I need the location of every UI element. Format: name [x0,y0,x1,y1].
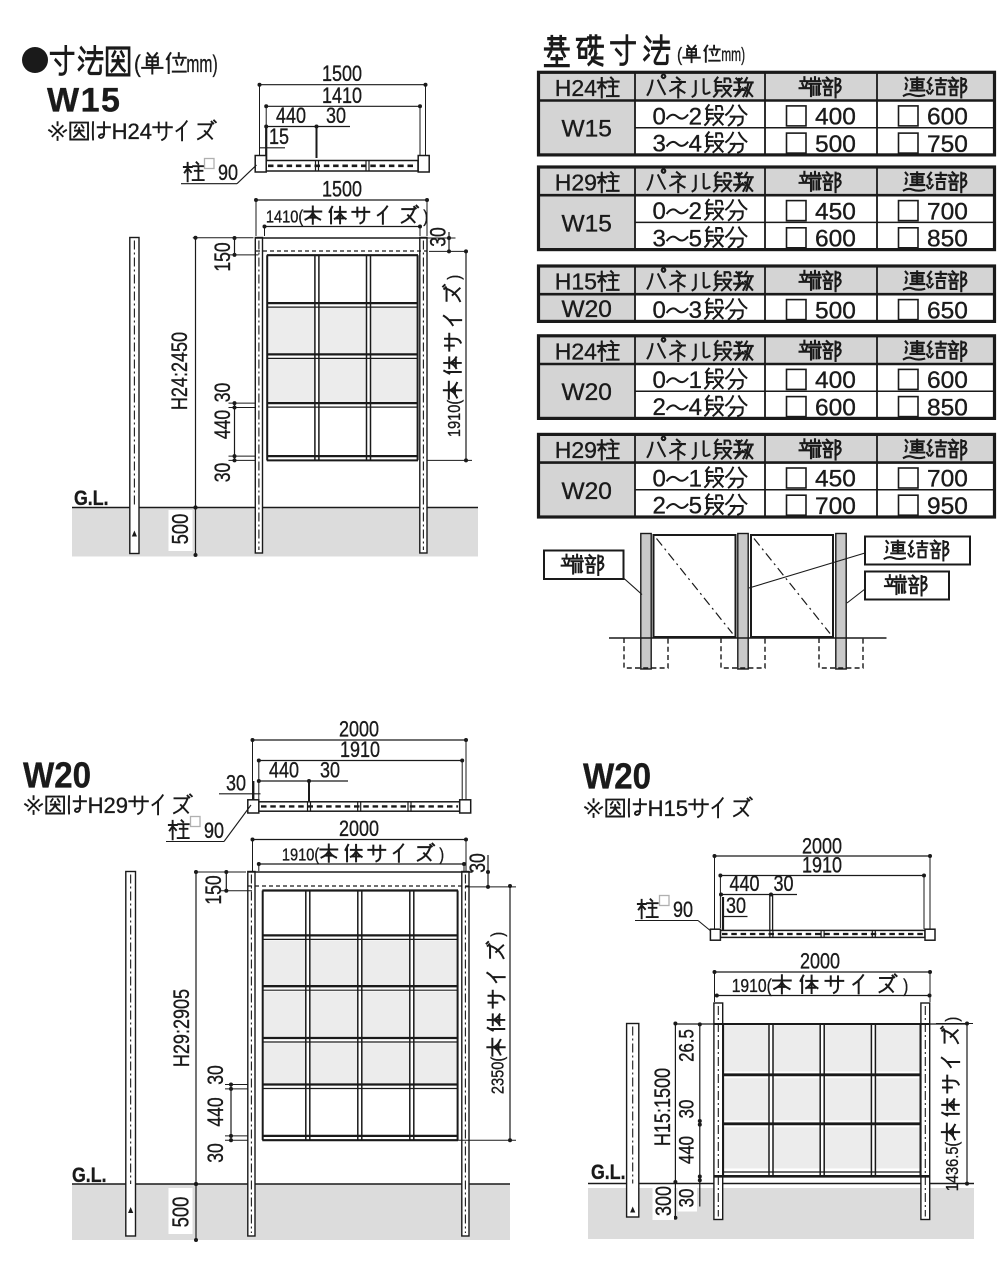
svg-text:2: 2 [689,103,702,130]
svg-text:500: 500 [167,514,193,545]
svg-text:30: 30 [465,853,490,873]
svg-text:30: 30 [226,770,246,795]
svg-text:30: 30 [726,893,746,918]
svg-text:0: 0 [652,367,665,394]
svg-text:600: 600 [927,104,968,131]
svg-text:30: 30 [676,1189,699,1208]
svg-text:H24: H24 [555,75,597,101]
svg-text:600: 600 [927,367,968,394]
svg-text:2000: 2000 [800,949,840,974]
svg-text:150: 150 [201,875,226,904]
svg-text:30: 30 [426,227,451,247]
svg-text:400: 400 [815,104,856,131]
svg-text:440: 440 [203,1097,228,1126]
svg-text:W20: W20 [562,379,612,406]
svg-text:90: 90 [673,897,693,922]
svg-text:440: 440 [269,758,299,783]
svg-text:H24: H24 [555,339,597,365]
svg-text:30: 30 [210,383,235,403]
svg-text:2000: 2000 [339,816,379,841]
svg-text:400: 400 [815,367,856,394]
svg-text:1910: 1910 [340,737,380,762]
svg-text:700: 700 [927,466,968,493]
svg-text:H15: H15 [555,269,597,295]
svg-text:3: 3 [652,131,665,158]
svg-text:700: 700 [927,198,968,225]
svg-text:30: 30 [320,758,340,783]
svg-text:0: 0 [652,297,665,324]
svg-text:W15: W15 [47,82,121,120]
svg-text:H29: H29 [555,170,597,196]
svg-text:): ) [444,275,464,280]
svg-text:): ) [439,845,444,865]
svg-text:5: 5 [689,225,702,252]
svg-text:700: 700 [815,493,856,520]
svg-text:W20: W20 [562,478,612,505]
svg-text:650: 650 [927,297,968,324]
svg-text:G.L.: G.L. [591,1160,626,1184]
svg-text:26.5: 26.5 [676,1029,699,1062]
svg-text:G.L.: G.L. [74,486,109,510]
svg-text:30: 30 [210,463,235,483]
svg-text:1410(: 1410( [266,207,304,227]
svg-text:W20: W20 [583,756,651,797]
svg-text:2350(: 2350( [487,1057,507,1095]
svg-text:H29: H29 [88,793,128,818]
svg-text:500: 500 [815,297,856,324]
svg-text:1: 1 [689,466,702,493]
svg-text:(: ( [134,51,141,78]
svg-text:2: 2 [652,394,665,421]
svg-text:500: 500 [815,131,856,158]
svg-text:3: 3 [689,297,702,324]
svg-text:15: 15 [269,124,289,149]
svg-text:450: 450 [815,466,856,493]
svg-text:500: 500 [167,1197,193,1228]
svg-text:2: 2 [652,493,665,520]
svg-text:1: 1 [689,367,702,394]
svg-text:mm): mm) [721,44,745,66]
svg-text:W20: W20 [562,296,612,323]
svg-text:): ) [942,1017,962,1022]
svg-text:W15: W15 [562,210,612,237]
svg-text:2: 2 [689,198,702,225]
svg-text:30: 30 [774,871,794,896]
svg-text:0: 0 [652,466,665,493]
svg-text:W15: W15 [562,116,612,143]
svg-text:750: 750 [927,131,968,158]
svg-text:30: 30 [326,103,346,128]
svg-text:): ) [487,932,507,937]
svg-text:(: ( [677,44,683,66]
svg-text:1910: 1910 [802,853,842,878]
svg-text:600: 600 [815,394,856,421]
svg-text:30: 30 [203,1143,228,1163]
svg-text:H29:2905: H29:2905 [169,989,194,1067]
svg-text:4: 4 [689,394,702,421]
svg-text:0: 0 [652,198,665,225]
svg-text:H29: H29 [555,437,597,463]
svg-text:30: 30 [676,1100,699,1119]
svg-text:): ) [423,207,428,227]
svg-text:H15:1500: H15:1500 [650,1068,675,1146]
svg-text:G.L.: G.L. [72,1163,107,1187]
svg-text:950: 950 [927,493,968,520]
svg-text:W20: W20 [23,755,91,796]
svg-text:90: 90 [218,160,238,185]
svg-text:90: 90 [204,818,224,843]
svg-text:): ) [903,976,908,997]
svg-text:1910(: 1910( [444,400,464,438]
svg-text:600: 600 [815,226,856,253]
svg-text:5: 5 [689,493,702,520]
svg-text:30: 30 [203,1065,228,1085]
svg-text:1500: 1500 [322,177,362,202]
svg-text:1910(: 1910( [282,845,320,865]
svg-text:H24:2450: H24:2450 [167,332,192,410]
svg-text:4: 4 [689,131,702,158]
svg-text:3: 3 [652,225,665,252]
svg-text:850: 850 [927,226,968,253]
svg-text:850: 850 [927,394,968,421]
svg-text:0: 0 [652,103,665,130]
svg-text:150: 150 [210,242,235,271]
svg-text:450: 450 [815,198,856,225]
svg-text:300: 300 [651,1186,676,1216]
svg-text:440: 440 [676,1136,699,1164]
svg-text:1910(: 1910( [732,976,773,997]
svg-text:1436.5(: 1436.5( [942,1142,962,1192]
svg-text:H24: H24 [112,119,152,144]
svg-text:mm): mm) [186,51,217,78]
svg-text:H15: H15 [648,796,688,821]
svg-text:440: 440 [210,410,235,439]
